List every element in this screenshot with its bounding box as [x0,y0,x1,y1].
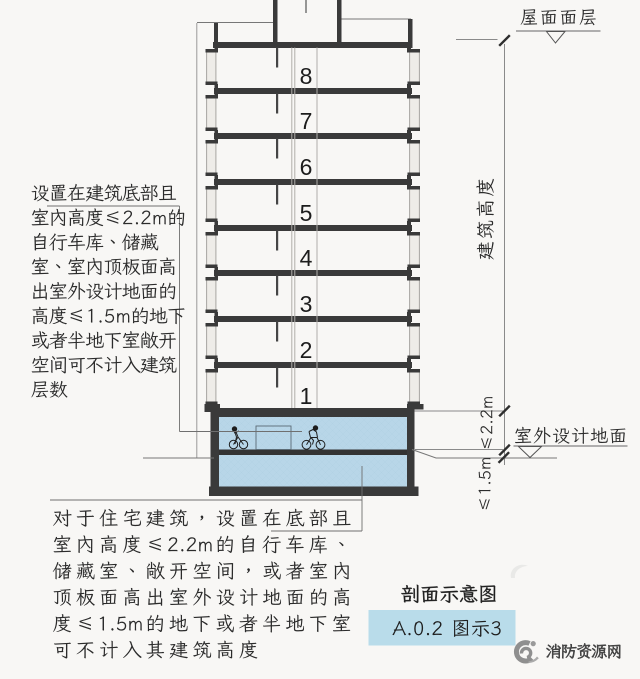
svg-text:1: 1 [300,383,313,409]
svg-text:6: 6 [300,154,313,180]
svg-text:3: 3 [300,291,313,317]
svg-text:2: 2 [300,337,313,363]
svg-text:4: 4 [300,245,313,271]
svg-text:5: 5 [300,200,313,226]
svg-text:8: 8 [300,63,313,89]
svg-text:7: 7 [300,108,313,134]
